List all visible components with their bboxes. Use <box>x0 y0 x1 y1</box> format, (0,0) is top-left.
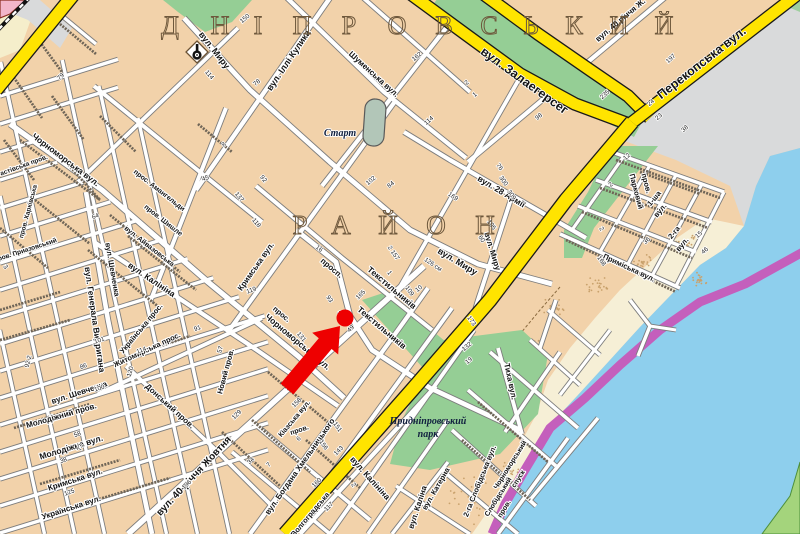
svg-text:В: В <box>435 11 452 40</box>
svg-text:Придніпровський: Придніпровський <box>389 416 467 427</box>
svg-text:парк: парк <box>418 429 440 440</box>
svg-text:О: О <box>388 11 407 40</box>
svg-text:К: К <box>565 11 583 40</box>
svg-text:Ь: Ь <box>524 11 539 40</box>
svg-text:А: А <box>331 210 351 240</box>
svg-text:И: И <box>610 11 629 40</box>
svg-text:Й: Й <box>655 11 674 40</box>
svg-text:П: П <box>293 11 312 40</box>
svg-text:Р: Р <box>342 11 356 40</box>
svg-text:Н: Н <box>211 11 230 40</box>
svg-text:Д: Д <box>161 11 179 40</box>
svg-text:С: С <box>480 11 497 40</box>
svg-text:О: О <box>426 210 446 240</box>
svg-text:Н: Н <box>475 210 495 240</box>
svg-text:Старт: Старт <box>324 128 356 139</box>
svg-text:Й: Й <box>378 210 398 240</box>
svg-text:І: І <box>254 11 263 40</box>
svg-text:Р: Р <box>292 210 307 240</box>
